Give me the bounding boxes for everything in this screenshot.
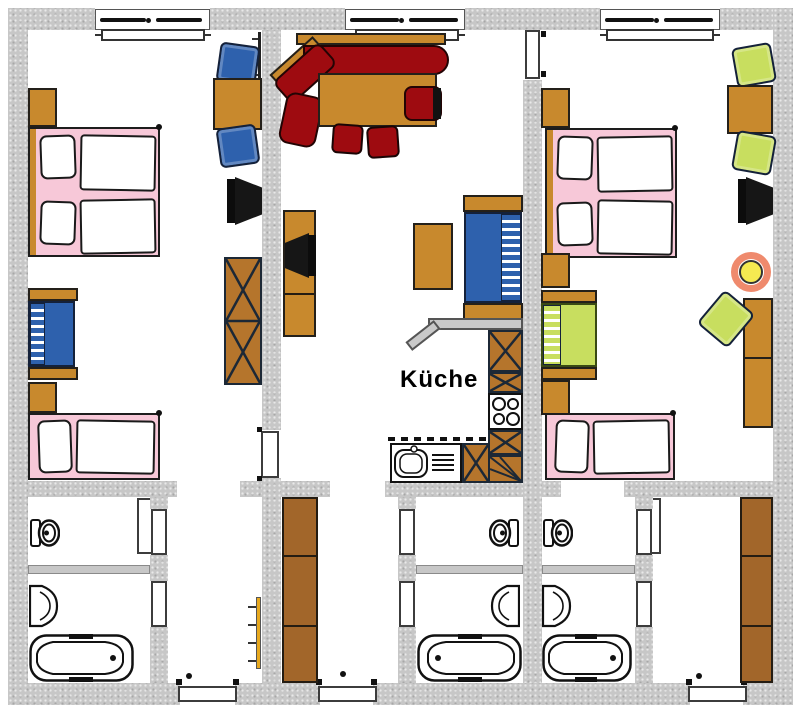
pillow — [554, 419, 590, 473]
hall-wall-middle-seg2 — [385, 481, 523, 497]
nightstand — [541, 380, 570, 415]
sofa-back-slats — [543, 305, 561, 365]
radiator-hook — [248, 624, 256, 626]
bath-wall-mid-seg3 — [398, 627, 416, 683]
entry-door-left — [178, 686, 237, 702]
bed-post-dot — [672, 125, 678, 131]
hall-wall-left-seg1 — [28, 481, 177, 497]
wardrobe-middle-hall — [282, 497, 318, 683]
exterior-wall-top-seg3 — [465, 8, 600, 30]
door-wc-right — [636, 509, 652, 555]
exterior-wall-bottom-seg1 — [8, 683, 180, 705]
radiator-hook — [248, 642, 256, 644]
bed-headboard — [547, 130, 553, 256]
radiator-hook — [203, 34, 211, 36]
kitchen-sink-unit — [390, 443, 462, 483]
sink-middle — [490, 583, 520, 630]
duvet — [76, 419, 156, 474]
desk-right-upper — [743, 298, 773, 359]
nightstand — [28, 88, 57, 127]
door-bath-left2 — [151, 581, 167, 627]
divider-wc-bath-left — [28, 565, 150, 574]
double-bed-right — [545, 128, 677, 258]
duvet — [597, 135, 674, 192]
exterior-wall-right — [773, 8, 793, 705]
kitchen-cabinet-x3 — [488, 430, 523, 455]
kitchen-corner-cabinet — [488, 455, 523, 483]
single-bed-right — [545, 413, 675, 480]
desk-right-lower — [743, 357, 773, 428]
interior-wall-right — [523, 80, 542, 683]
chair-green-top — [731, 42, 777, 88]
window-pane — [350, 18, 399, 22]
radiator-hook — [712, 34, 720, 36]
hall-wall-left-seg2 — [240, 481, 262, 497]
dining-table-left — [213, 78, 262, 130]
radiator-hook — [252, 38, 258, 40]
sink-right — [542, 583, 572, 630]
window-pane — [156, 18, 202, 22]
daybed-slats — [501, 214, 521, 301]
duvet — [597, 199, 674, 255]
kitchen-cabinet-x2 — [488, 372, 523, 393]
exterior-wall-bottom-seg4 — [743, 683, 793, 705]
x-pattern — [226, 259, 260, 383]
door-frame-nub — [233, 679, 239, 685]
window-middle — [345, 9, 465, 30]
hall-wall-right-seg2 — [624, 481, 773, 497]
bath-wall-right-seg2 — [635, 555, 653, 581]
wardrobe-divider — [284, 625, 316, 627]
window-pane — [664, 18, 713, 22]
chair-green-bottom — [731, 130, 777, 176]
door-right-bedroom — [525, 30, 540, 79]
door-left-bedroom — [261, 431, 279, 478]
bath-wall-left-unit-seg3 — [150, 627, 168, 683]
bath-wall-mid-seg1 — [398, 497, 416, 509]
stool-red-2 — [366, 125, 400, 159]
bed-post-dot — [670, 410, 676, 416]
armchair-red-back — [433, 88, 441, 119]
door-handle-dot — [186, 673, 192, 679]
kitchen-cabinet-x1 — [488, 330, 523, 372]
pillow — [37, 419, 73, 473]
interior-wall-left-lower — [262, 478, 281, 683]
bathtub-right — [542, 634, 632, 682]
window-right — [600, 9, 720, 30]
entry-door-middle — [318, 686, 377, 702]
door-hinge — [257, 427, 262, 432]
sofa-armrest — [541, 290, 597, 303]
double-bed-left — [28, 127, 160, 257]
toilet-middle — [489, 517, 519, 549]
hall-wall-middle-seg1 — [281, 481, 330, 497]
exterior-wall-bottom-seg2 — [235, 683, 320, 705]
kitchen-counter-hook — [405, 320, 440, 351]
bath-wall-left-unit-seg1 — [150, 497, 168, 509]
bath-wall-right-seg1 — [635, 497, 653, 509]
window-handle-dot — [146, 18, 151, 23]
window-pane — [409, 18, 458, 22]
entry-door-right — [688, 686, 747, 702]
bath-wall-right-seg3 — [635, 627, 653, 683]
tv-right-bedroom-icon — [746, 177, 773, 225]
nightstand — [541, 253, 570, 288]
radiator-hook — [95, 34, 103, 36]
bed-post-dot — [156, 124, 162, 130]
wardrobe-divider — [742, 625, 771, 627]
kitchen-label: Küche — [400, 366, 478, 394]
radiator-hook — [600, 34, 608, 36]
pillow — [556, 135, 594, 180]
coffee-table-middle — [413, 223, 453, 290]
bath-wall-mid-seg2 — [398, 555, 416, 581]
toilet-right — [543, 517, 573, 549]
floor-plan: Küche — [0, 0, 800, 714]
lamp-shade — [739, 260, 763, 284]
tv-living-room-screen — [308, 235, 316, 276]
hall-wall-right-seg1 — [542, 481, 561, 497]
kitchen-cabinet-x4 — [462, 443, 490, 483]
window-left — [95, 9, 210, 30]
sofa-armrest — [28, 288, 78, 301]
window-handle-dot — [654, 18, 659, 23]
chair-blue-bottom — [215, 123, 260, 168]
single-bed-left — [28, 413, 160, 480]
wardrobe-x-left-bedroom — [224, 257, 262, 385]
exterior-wall-bottom-seg3 — [373, 683, 690, 705]
duvet — [80, 134, 157, 191]
divider-wc-bath-right — [542, 565, 635, 574]
bathtub-left — [29, 634, 134, 682]
bed-post-dot — [156, 410, 162, 416]
stove — [488, 393, 523, 430]
window-pane — [100, 18, 146, 22]
divider-wc-bath-middle — [416, 565, 523, 574]
wardrobe-divider — [742, 555, 771, 557]
exterior-wall-top-seg2 — [210, 8, 345, 30]
pillow — [39, 134, 77, 179]
duvet — [593, 419, 671, 474]
radiator-under-window-right — [606, 29, 714, 41]
bathtub-middle — [417, 634, 522, 682]
wardrobe-right-hall — [740, 497, 773, 683]
wardrobe-divider — [284, 555, 316, 557]
sofa-back-slats — [30, 303, 45, 365]
door-hinge — [541, 31, 546, 37]
door-frame-nub — [371, 679, 377, 685]
tv-right-bedroom-screen — [738, 179, 746, 223]
tv-left-bedroom-icon — [235, 177, 262, 225]
door-bath-right — [636, 581, 652, 627]
sink-left — [29, 583, 59, 630]
radiator-hook — [457, 34, 465, 36]
nightstand — [541, 88, 570, 128]
pillow — [39, 200, 77, 245]
bath-wall-left-unit-seg2 — [150, 555, 168, 581]
window-handle-dot — [399, 18, 404, 23]
radiator-hook — [248, 660, 256, 662]
daybed-cap — [463, 195, 523, 212]
door-frame-nub — [176, 679, 182, 685]
kitchen-counter-dashed-edge — [388, 437, 490, 441]
radiator-under-window-left — [101, 29, 205, 41]
door-wc-middle — [399, 509, 415, 555]
sofa-armrest — [541, 367, 597, 380]
sideboard-divider — [285, 293, 314, 295]
hall-radiator-yellow — [256, 597, 261, 669]
door-handle-dot — [340, 671, 346, 677]
door-bath-middle — [399, 581, 415, 627]
nightstand — [28, 382, 57, 413]
stool-red-1 — [331, 123, 364, 155]
duvet — [80, 198, 157, 254]
bed-headboard — [30, 129, 36, 255]
door-hinge — [541, 71, 546, 77]
dining-table-right — [727, 85, 773, 134]
toilet-left — [30, 517, 60, 549]
radiator-hook — [248, 606, 256, 608]
exterior-wall-left — [8, 8, 28, 705]
window-pane — [605, 18, 654, 22]
sofa-armrest — [28, 367, 78, 380]
kitchen-counter-bar — [428, 318, 523, 330]
door-frame-nub — [686, 679, 692, 685]
door-handle-dot — [696, 673, 702, 679]
door-bath-left — [151, 509, 167, 555]
pillow — [556, 201, 594, 246]
tv-left-bedroom-screen — [227, 179, 235, 223]
